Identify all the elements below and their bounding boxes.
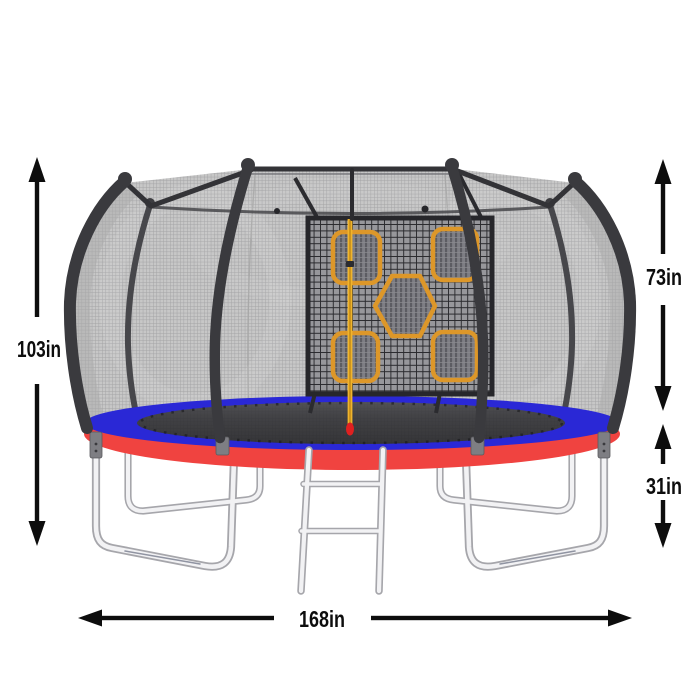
net-clip [422,206,429,213]
square-target-bottom-right [433,332,477,380]
center-pole-line [349,219,350,425]
trampoline-illustration: 103in 73in 31in 168in [0,0,700,700]
square-target-top-left [333,232,380,283]
dimension-label-frame-height: 31in [646,473,682,499]
net-clip [274,208,280,214]
dimension-label-overall-height: 103in [17,336,61,362]
product-dimension-diagram: 103in 73in 31in 168in [0,0,700,700]
center-pole-clamp [346,261,354,267]
dimension-label-overall-width: 168in [299,606,345,632]
dimension-label-net-height: 73in [646,264,682,290]
square-target-bottom-left [333,333,378,381]
center-pole-tip [346,423,354,436]
